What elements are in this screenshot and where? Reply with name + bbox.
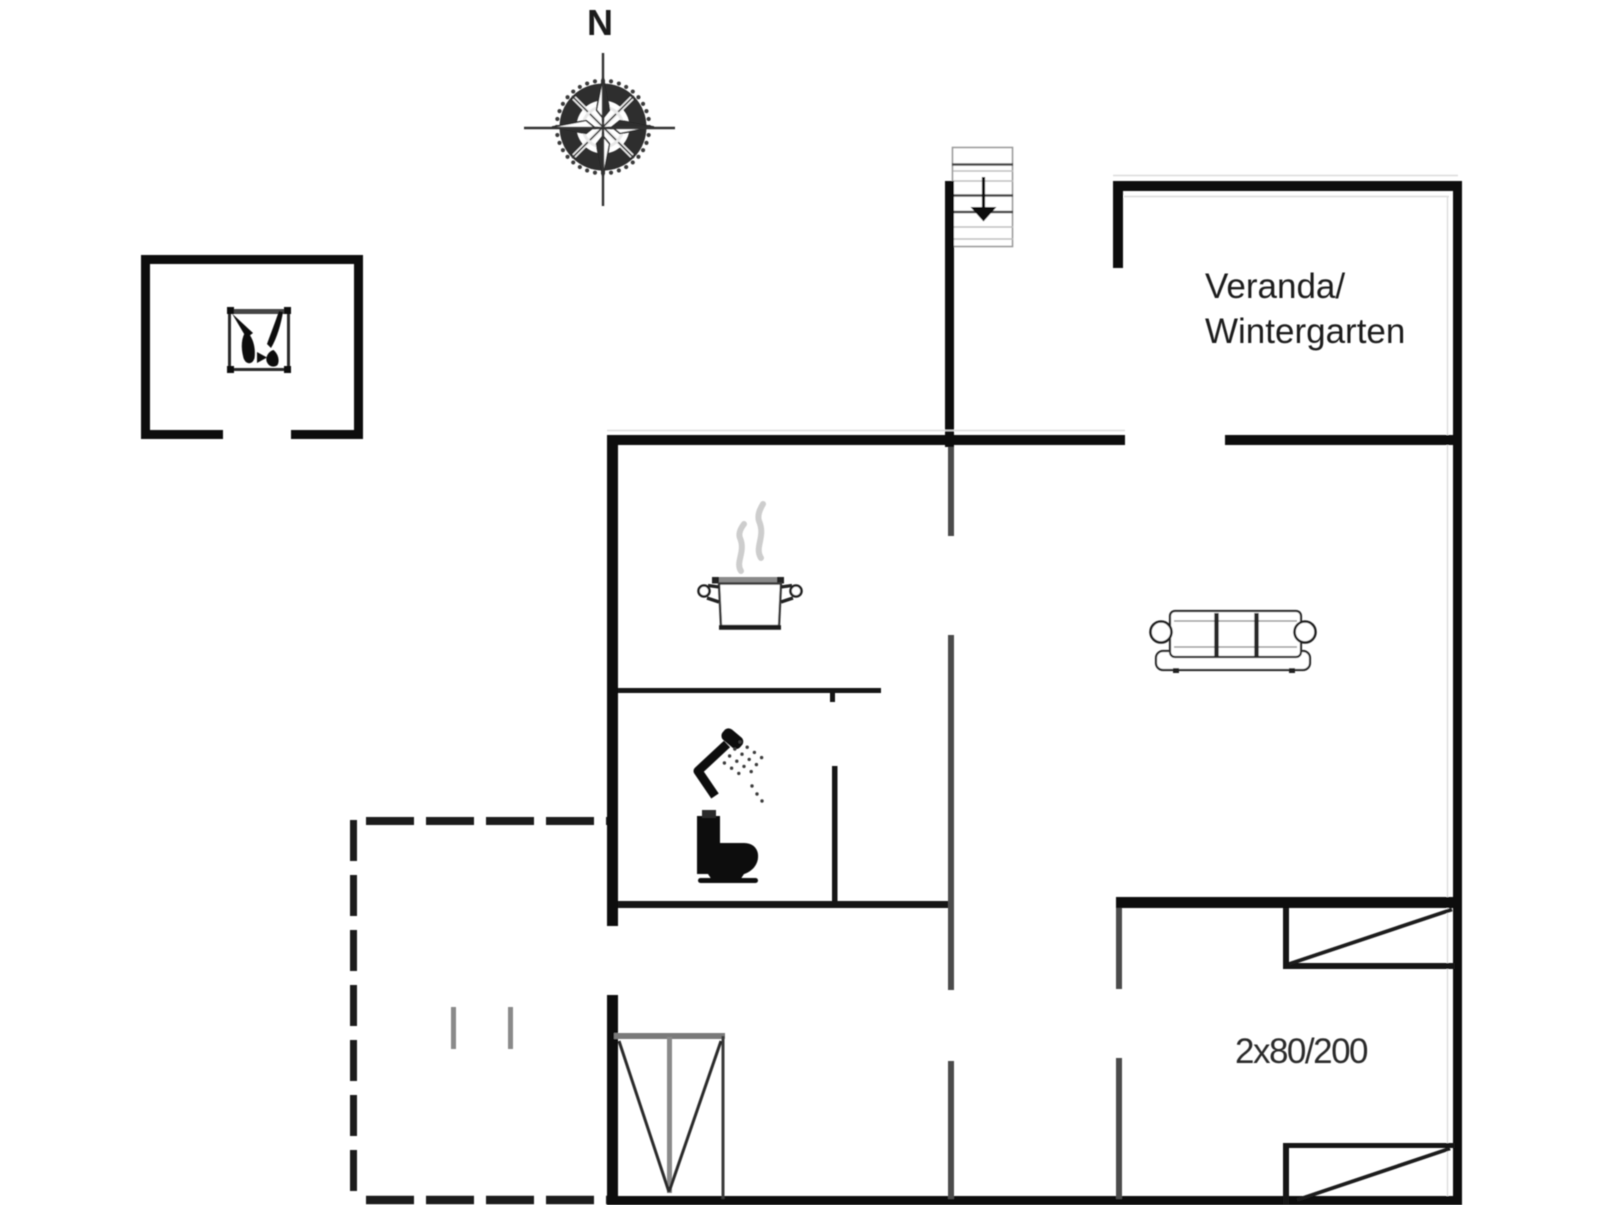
svg-text:Wintergarten: Wintergarten bbox=[1205, 312, 1405, 351]
svg-text:N: N bbox=[587, 2, 613, 43]
svg-text:Veranda/: Veranda/ bbox=[1205, 267, 1345, 306]
svg-text:2x80/200: 2x80/200 bbox=[1235, 1032, 1368, 1071]
